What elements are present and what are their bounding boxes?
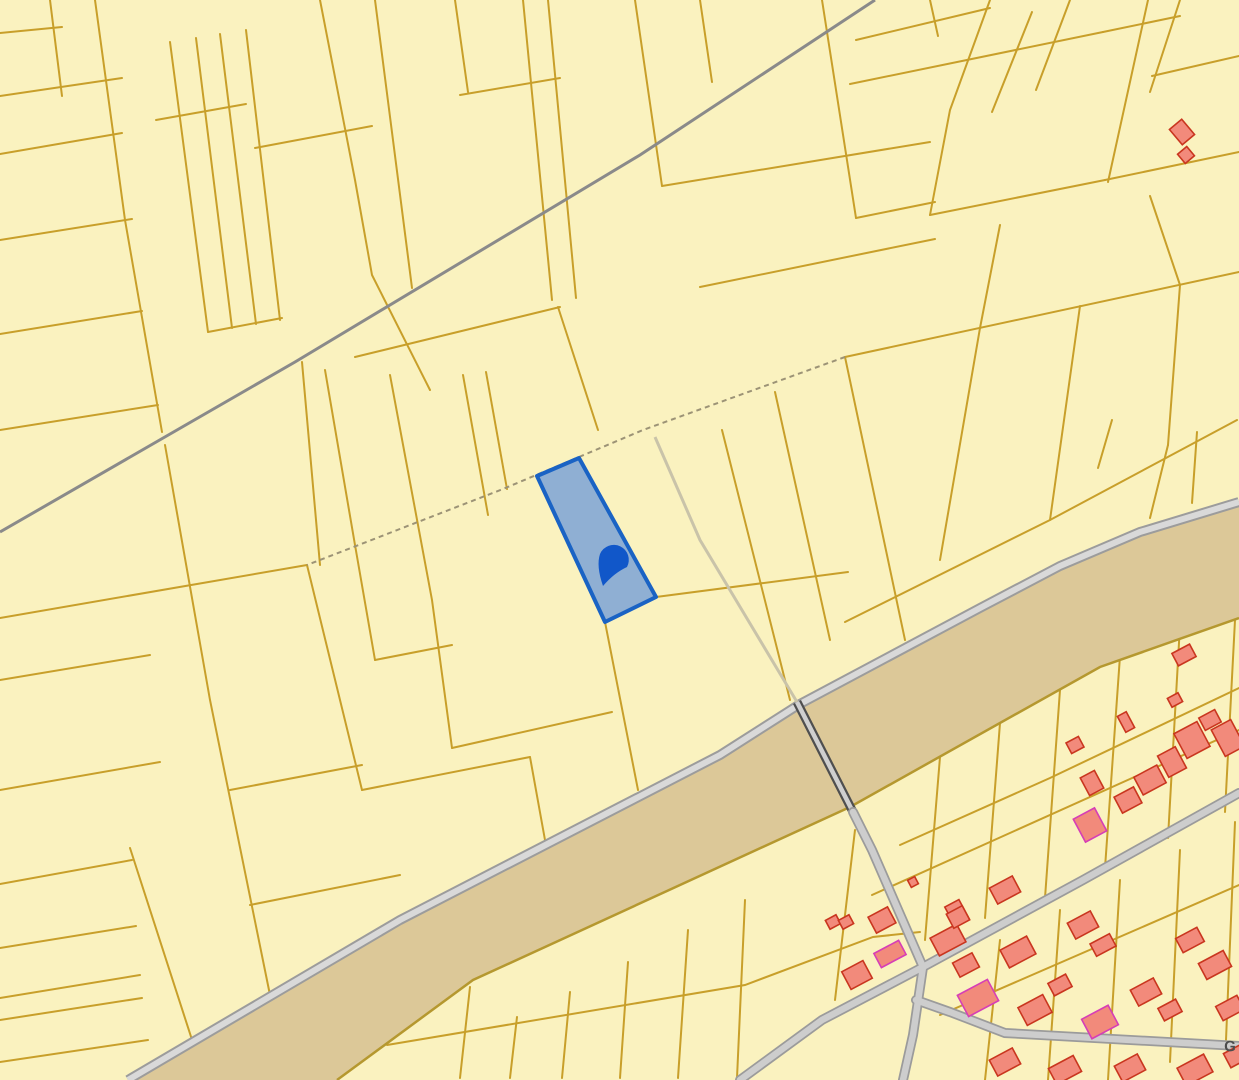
street-name-label: G [1224, 1038, 1236, 1055]
map-canvas[interactable]: G [0, 0, 1239, 1080]
cadastral-map: G [0, 0, 1239, 1080]
